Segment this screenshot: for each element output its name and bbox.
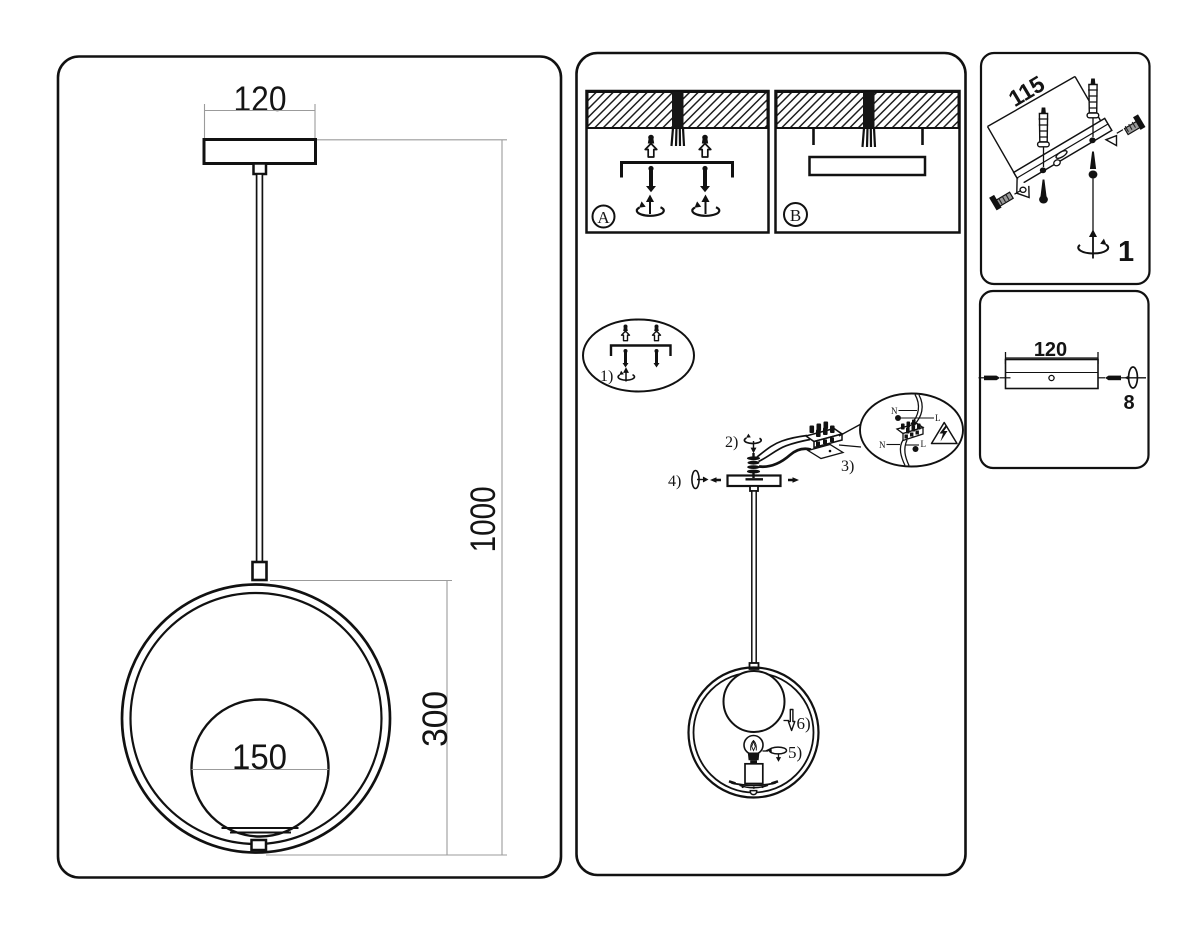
svg-text:3): 3) [841, 458, 854, 475]
svg-text:1: 1 [1118, 236, 1134, 268]
svg-text:1000: 1000 [464, 486, 503, 552]
svg-text:A: A [597, 208, 610, 227]
svg-text:L: L [935, 413, 941, 423]
svg-text:N: N [891, 406, 898, 416]
svg-text:2): 2) [725, 434, 738, 451]
svg-text:1): 1) [600, 368, 613, 385]
svg-text:300: 300 [416, 691, 455, 747]
svg-text:B: B [790, 206, 801, 225]
svg-text:6): 6) [797, 714, 811, 733]
svg-text:4): 4) [668, 473, 681, 490]
svg-text:8: 8 [1123, 392, 1134, 414]
svg-text:120: 120 [234, 80, 287, 119]
svg-text:150: 150 [232, 738, 287, 777]
svg-text:N: N [879, 440, 886, 450]
svg-text:L: L [921, 439, 927, 449]
svg-text:5): 5) [788, 743, 802, 762]
